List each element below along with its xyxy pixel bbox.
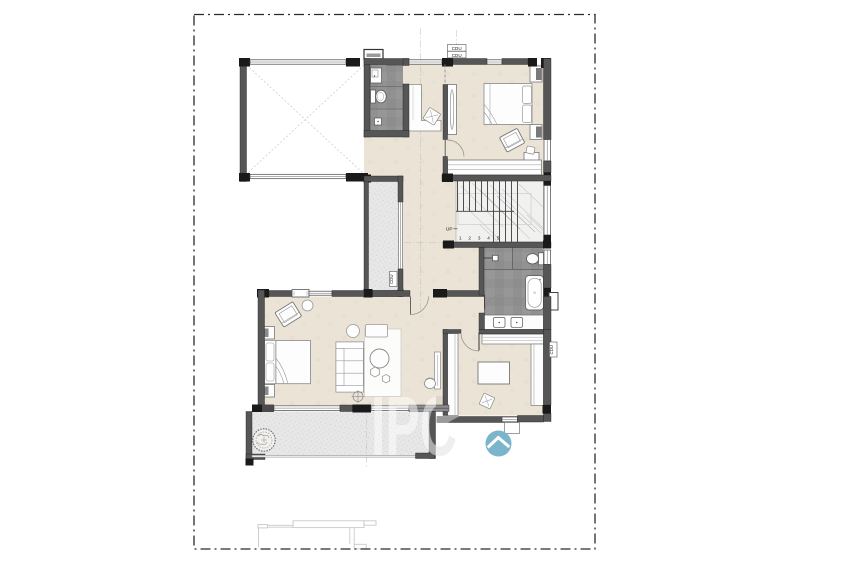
svg-text:CDU: CDU <box>452 46 462 51</box>
svg-text:UP: UP <box>446 227 452 232</box>
svg-text:1 2 3 4 5: 1 2 3 4 5 <box>459 236 502 241</box>
svg-text:CDU: CDU <box>389 274 394 284</box>
svg-text:CDU: CDU <box>549 345 554 355</box>
svg-text:CDU: CDU <box>452 53 462 58</box>
